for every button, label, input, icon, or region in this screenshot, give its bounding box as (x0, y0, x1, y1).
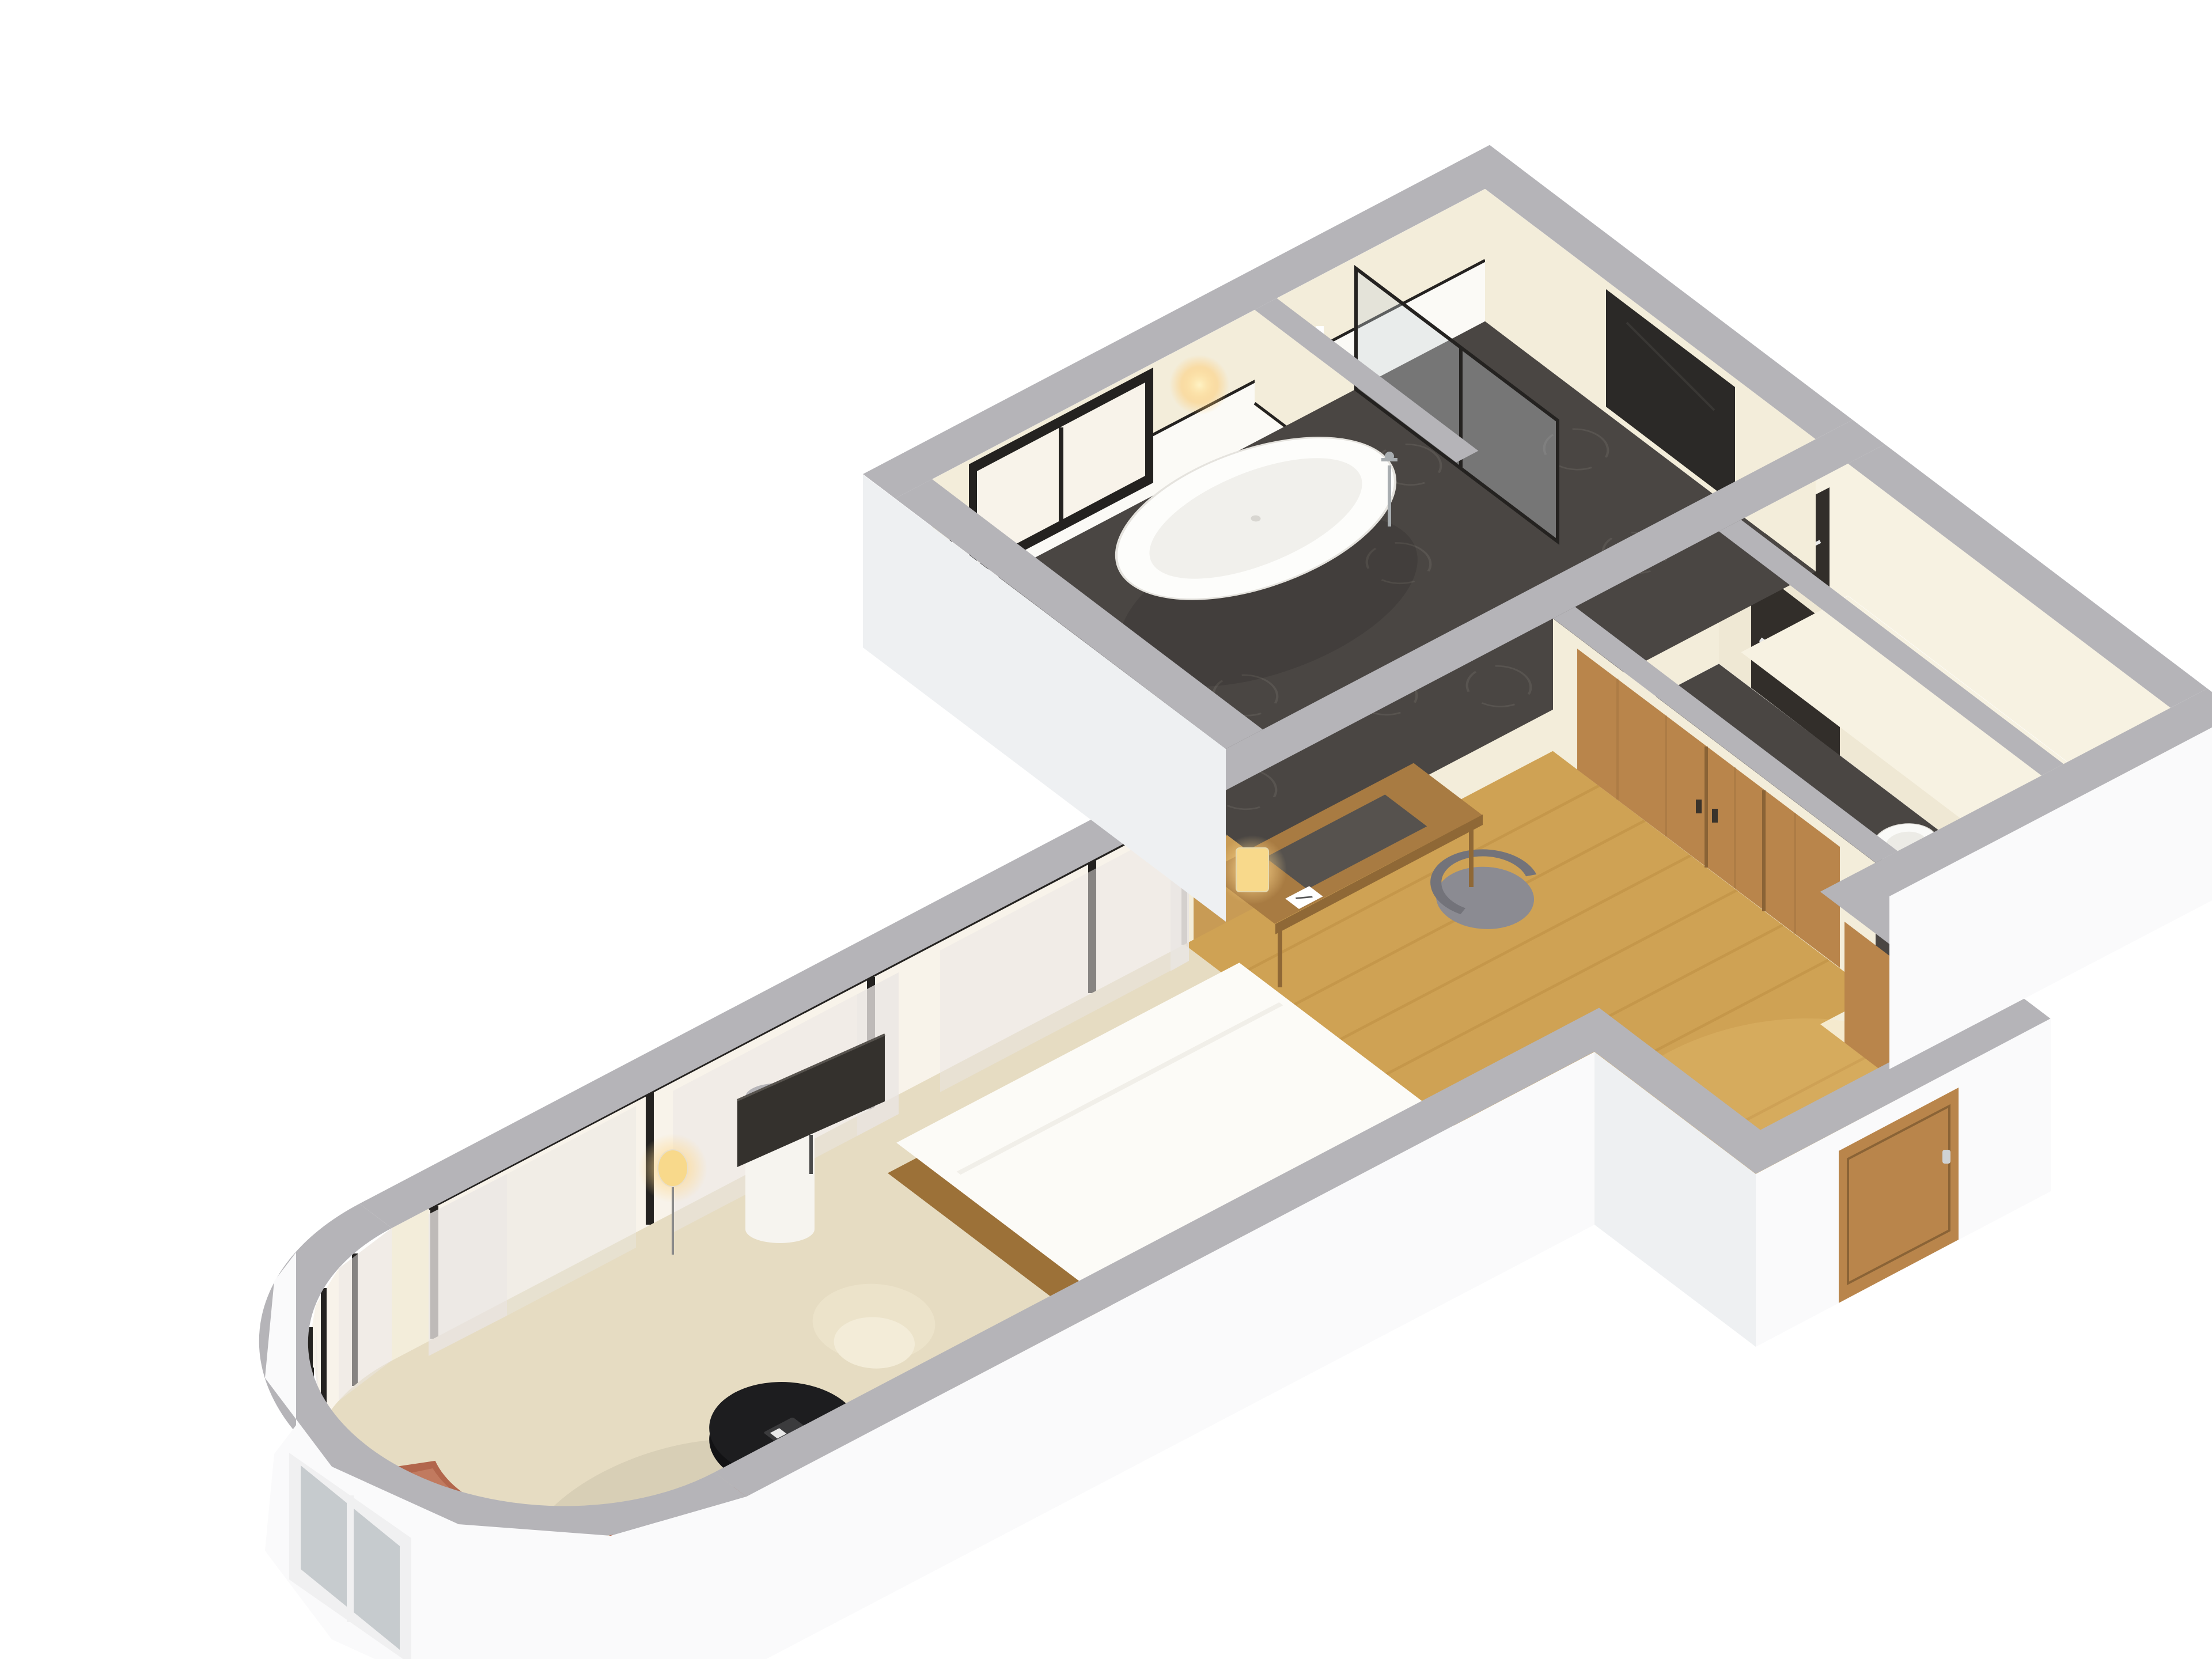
render-canvas (0, 0, 2212, 1659)
closet-handle-right (1712, 809, 1718, 823)
column-base (745, 1215, 815, 1243)
floor-lamp-shade (658, 1150, 688, 1187)
floorplan-render (0, 0, 2212, 1659)
desk-leg-left (1278, 925, 1282, 987)
faucet-spout (1385, 452, 1394, 461)
desk-leg-right (1469, 825, 1474, 887)
desk-lamp (1236, 848, 1268, 892)
entry-door-handle (1942, 1150, 1950, 1164)
closet-handle-left (1696, 800, 1702, 813)
wall-sconce-glow (1169, 355, 1229, 415)
